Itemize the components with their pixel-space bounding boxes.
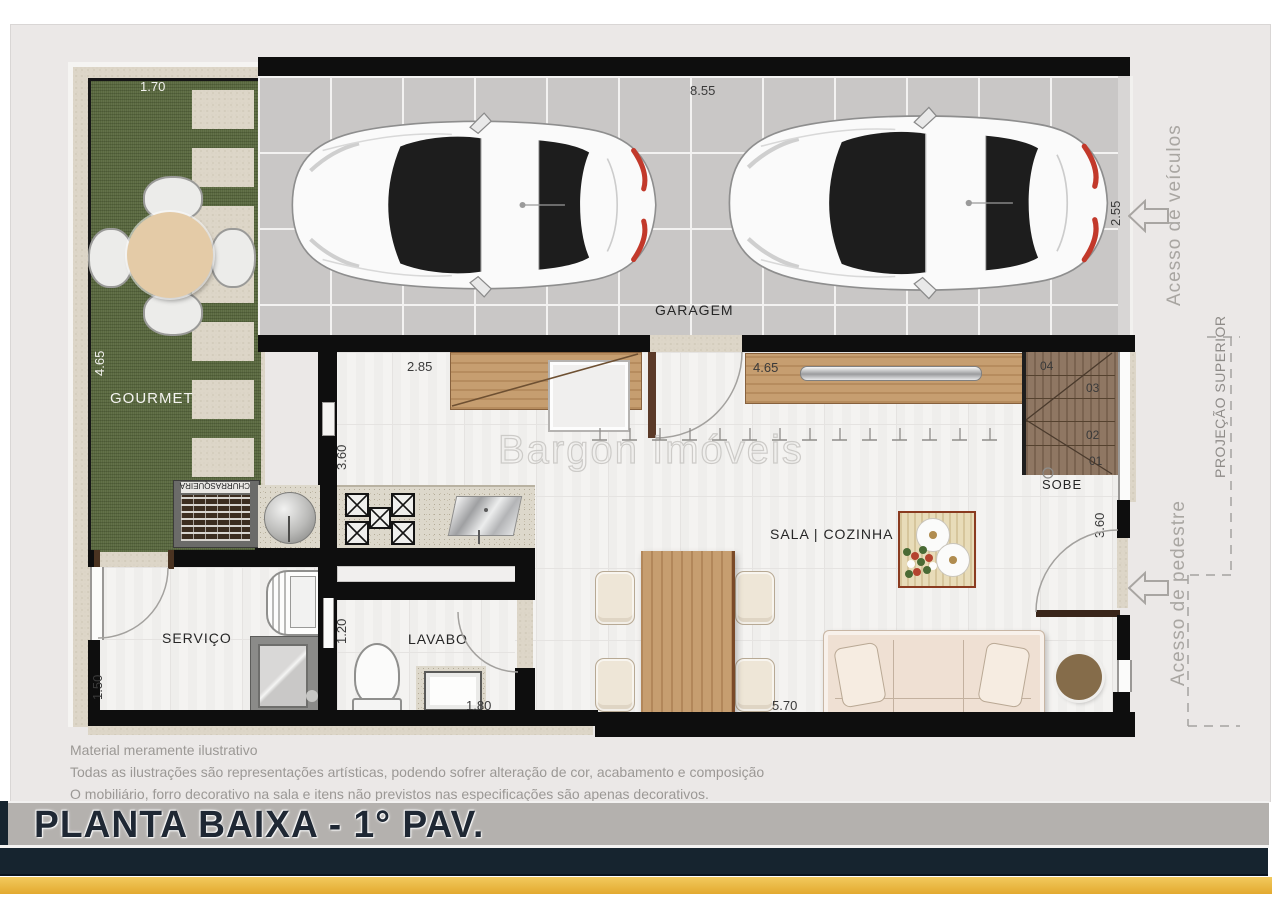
room-label-churrasqueira: CHURRASQUEIRA [182, 481, 250, 490]
dim-stairs-height: 3.60 [1092, 496, 1107, 538]
bottom-outer-strip [88, 726, 593, 735]
dining-chair [595, 571, 635, 625]
garage-top-wall-end [1118, 57, 1130, 76]
stepping-stone [192, 90, 254, 129]
page-title: PLANTA BAIXA - 1° PAV. [34, 804, 484, 847]
dim-servico-height: 1.50 [90, 658, 105, 700]
basin-faucet [288, 516, 290, 542]
stair-step-01: 01 [1089, 454, 1102, 468]
room-label-lavabo: LAVABO [408, 631, 468, 647]
stepping-stone [192, 322, 254, 361]
kitchen-appliance [548, 360, 630, 432]
garden-chair [210, 228, 256, 288]
stove-cooktop [340, 490, 436, 548]
interior-top-wall [258, 335, 650, 352]
lavabo-door-threshold [517, 600, 533, 670]
dim-sala-width: 5.70 [772, 698, 797, 713]
pedestrian-access-arrow-icon [1128, 570, 1170, 606]
garden-table [127, 212, 213, 298]
churrasqueira-grill [181, 495, 250, 541]
dim-kitchen-width: 2.85 [407, 359, 432, 374]
pedestrian-door-leaf [1036, 610, 1120, 617]
stepping-stone [192, 380, 254, 419]
room-label-servico: SERVIÇO [162, 630, 232, 646]
navy-band [0, 848, 1268, 876]
bottom-wall [88, 710, 598, 726]
annotation-pedestrian-access: Acesso de pedestre [1168, 500, 1190, 686]
watermark: Bargon Imóveis [498, 428, 804, 473]
pedestrian-threshold [1117, 538, 1128, 608]
label-sobe: SOBE [1042, 477, 1082, 492]
sink-faucet [478, 530, 480, 544]
sink-drain [484, 508, 488, 512]
dining-chair [735, 658, 775, 712]
sideboard-handle [800, 366, 982, 381]
disclaimer-line-1: Material meramente ilustrativo [70, 742, 258, 758]
dining-table [641, 551, 735, 718]
stair-step-line [1026, 398, 1115, 399]
title-bar: PLANTA BAIXA - 1° PAV. [8, 801, 1269, 847]
stair-step-04: 04 [1040, 359, 1053, 373]
stair-step-line [1026, 375, 1115, 376]
lavabo-vent-window [323, 598, 334, 648]
garage-top-wall [258, 57, 1128, 76]
right-wall-block [1117, 615, 1130, 660]
right-wall-block [1117, 500, 1130, 538]
stair-step-03: 03 [1086, 381, 1099, 395]
toilet-bowl [354, 643, 400, 705]
car-top-view [264, 100, 668, 310]
gold-band [0, 877, 1272, 894]
stepping-stone [192, 438, 254, 477]
stairs [1022, 352, 1119, 475]
flower-bouquet [903, 548, 911, 556]
kitchen-sink [448, 496, 523, 536]
floor-plan-page: 1.70 4.65 GOURMET CHURRASQUEIRA 8.55 GAR… [0, 0, 1280, 904]
garage-door-leaf [648, 352, 656, 438]
right-outer-strip [1130, 352, 1136, 502]
sofa-cushion-line [963, 640, 964, 712]
interior-top-wall [742, 335, 1135, 352]
garage-door-threshold [650, 335, 742, 352]
car-top-view [700, 92, 1120, 314]
stair-step-02: 02 [1086, 428, 1099, 442]
dim-sideboard-width: 4.65 [753, 360, 778, 375]
washing-machine-door [258, 644, 308, 708]
dim-gourmet-width: 1.70 [140, 79, 165, 94]
vehicle-access-arrow-icon [1128, 198, 1170, 234]
pass-through-window [337, 566, 519, 582]
room-label-gourmet: GOURMET [110, 390, 194, 407]
dim-gourmet-height: 4.65 [92, 332, 107, 376]
annotation-upper-projection: PROJEÇÃO SUPERIOR [1212, 340, 1228, 478]
plate [936, 543, 970, 577]
servico-door-threshold [98, 552, 170, 567]
round-basin [264, 492, 316, 544]
dim-lavabo-height: 1.20 [334, 600, 349, 644]
bottom-wall-sala [595, 712, 1135, 737]
stepping-stone [192, 148, 254, 187]
servico-wall [174, 550, 260, 567]
sala-window [1117, 660, 1132, 692]
disclaimer-line-3: O mobiliário, forro decorativo na sala e… [70, 786, 709, 802]
stair-step-line [1026, 421, 1115, 422]
washer-knob [306, 690, 318, 702]
sofa-cushion-line [893, 640, 894, 712]
laundry-tank-basin [290, 576, 316, 628]
tank-wall [255, 548, 320, 567]
side-pouf [1056, 654, 1102, 700]
servico-side-window [90, 567, 104, 640]
dining-chair [595, 658, 635, 712]
disclaimer-line-2: Todas as ilustrações são representações … [70, 764, 764, 780]
dining-chair [735, 571, 775, 625]
stair-step-line [1026, 445, 1115, 446]
room-label-sala-cozinha: SALA | COZINHA [770, 526, 893, 542]
lavabo-right-wall [515, 563, 535, 600]
title-bar-left-edge [0, 801, 8, 845]
dim-kitchen-height: 3.60 [334, 428, 349, 470]
